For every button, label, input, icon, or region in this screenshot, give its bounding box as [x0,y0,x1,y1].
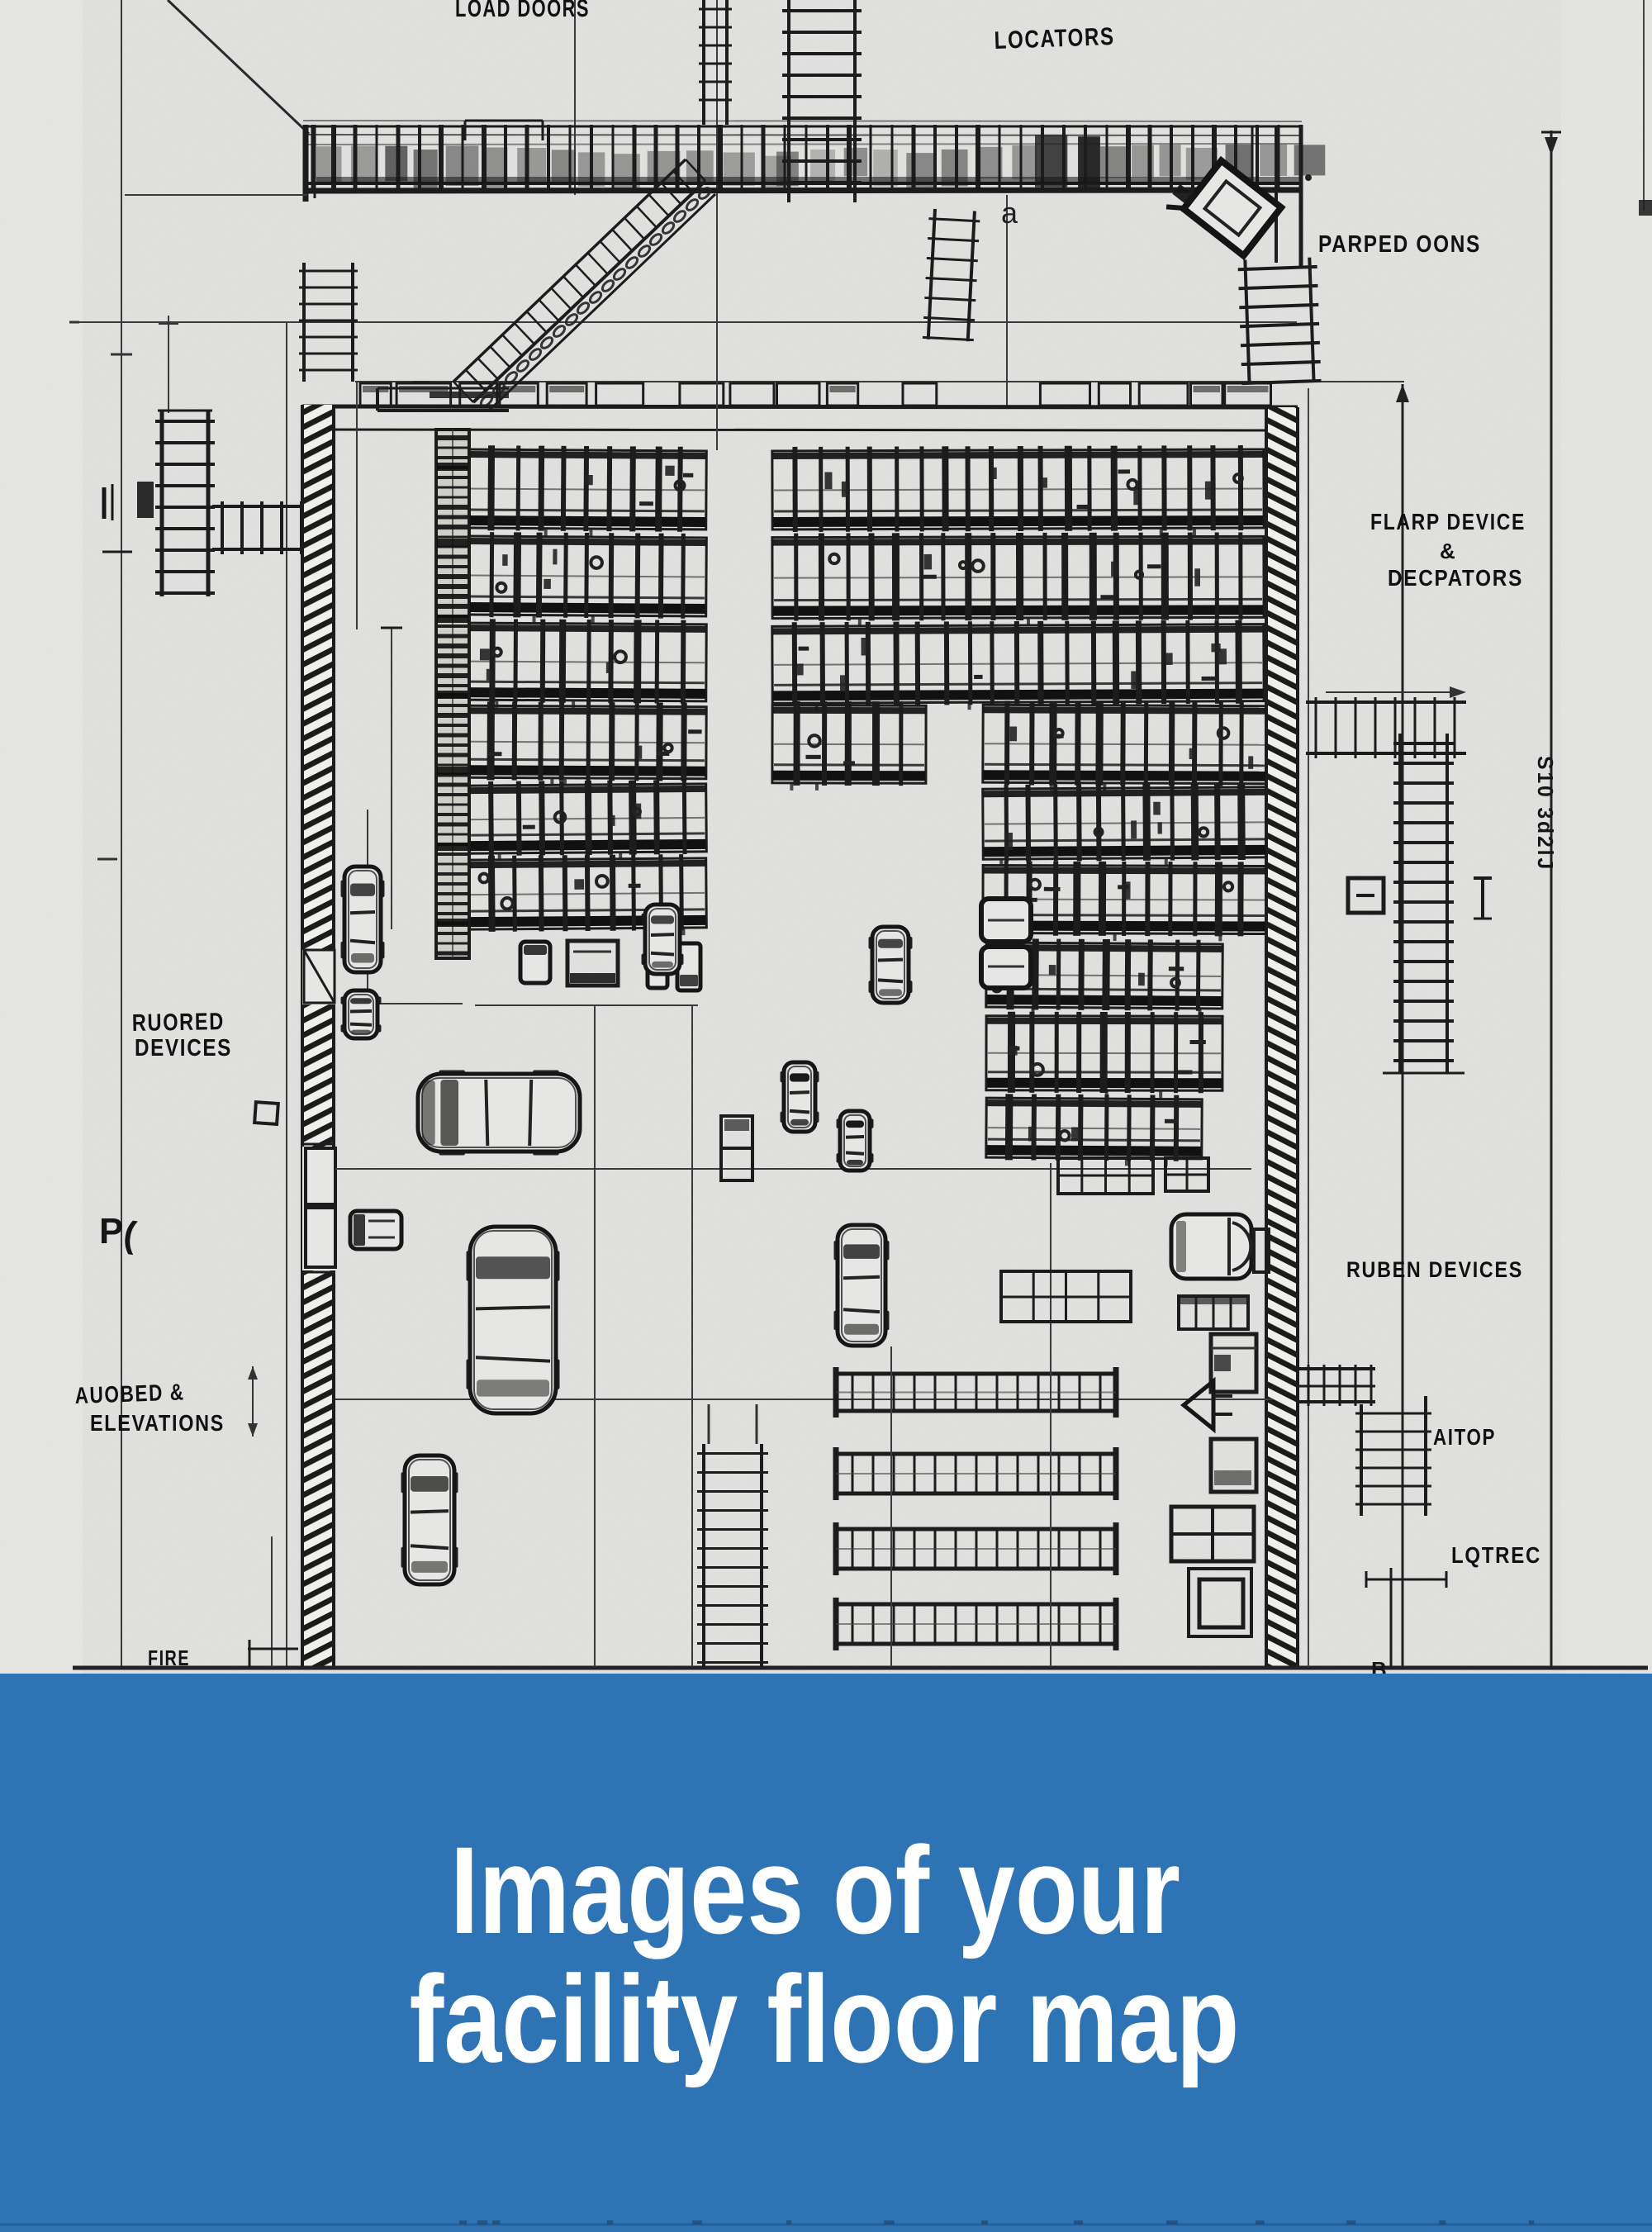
svg-text:LQTREC: LQTREC [1451,1542,1541,1568]
svg-text:LOAD DOORS: LOAD DOORS [455,0,590,22]
svg-text:AUOBED &: AUOBED & [74,1379,185,1408]
svg-text:P: P [99,1211,123,1251]
svg-text:FLARP DEVICE: FLARP DEVICE [1370,509,1526,534]
svg-text:S10 3d2lJ: S10 3d2lJ [1533,756,1558,871]
svg-text:facility floor map: facility floor map [410,1949,1240,2088]
svg-text:a: a [1001,196,1018,230]
svg-text:ELEVATIONS: ELEVATIONS [90,1410,225,1436]
svg-text:&: & [1440,539,1455,563]
svg-text:LOCATORS: LOCATORS [994,23,1115,55]
svg-text:RUBEN DEVICES: RUBEN DEVICES [1346,1257,1523,1282]
svg-text:DECPATORS: DECPATORS [1388,565,1523,591]
svg-text:AITOP: AITOP [1433,1424,1496,1450]
svg-text:Images of your: Images of your [450,1821,1180,1959]
svg-text:DEVICES: DEVICES [135,1035,232,1061]
svg-text:FIRE: FIRE [148,1646,190,1670]
svg-text:RUORED: RUORED [132,1009,225,1037]
svg-text:PARPED OONS: PARPED OONS [1318,231,1481,258]
